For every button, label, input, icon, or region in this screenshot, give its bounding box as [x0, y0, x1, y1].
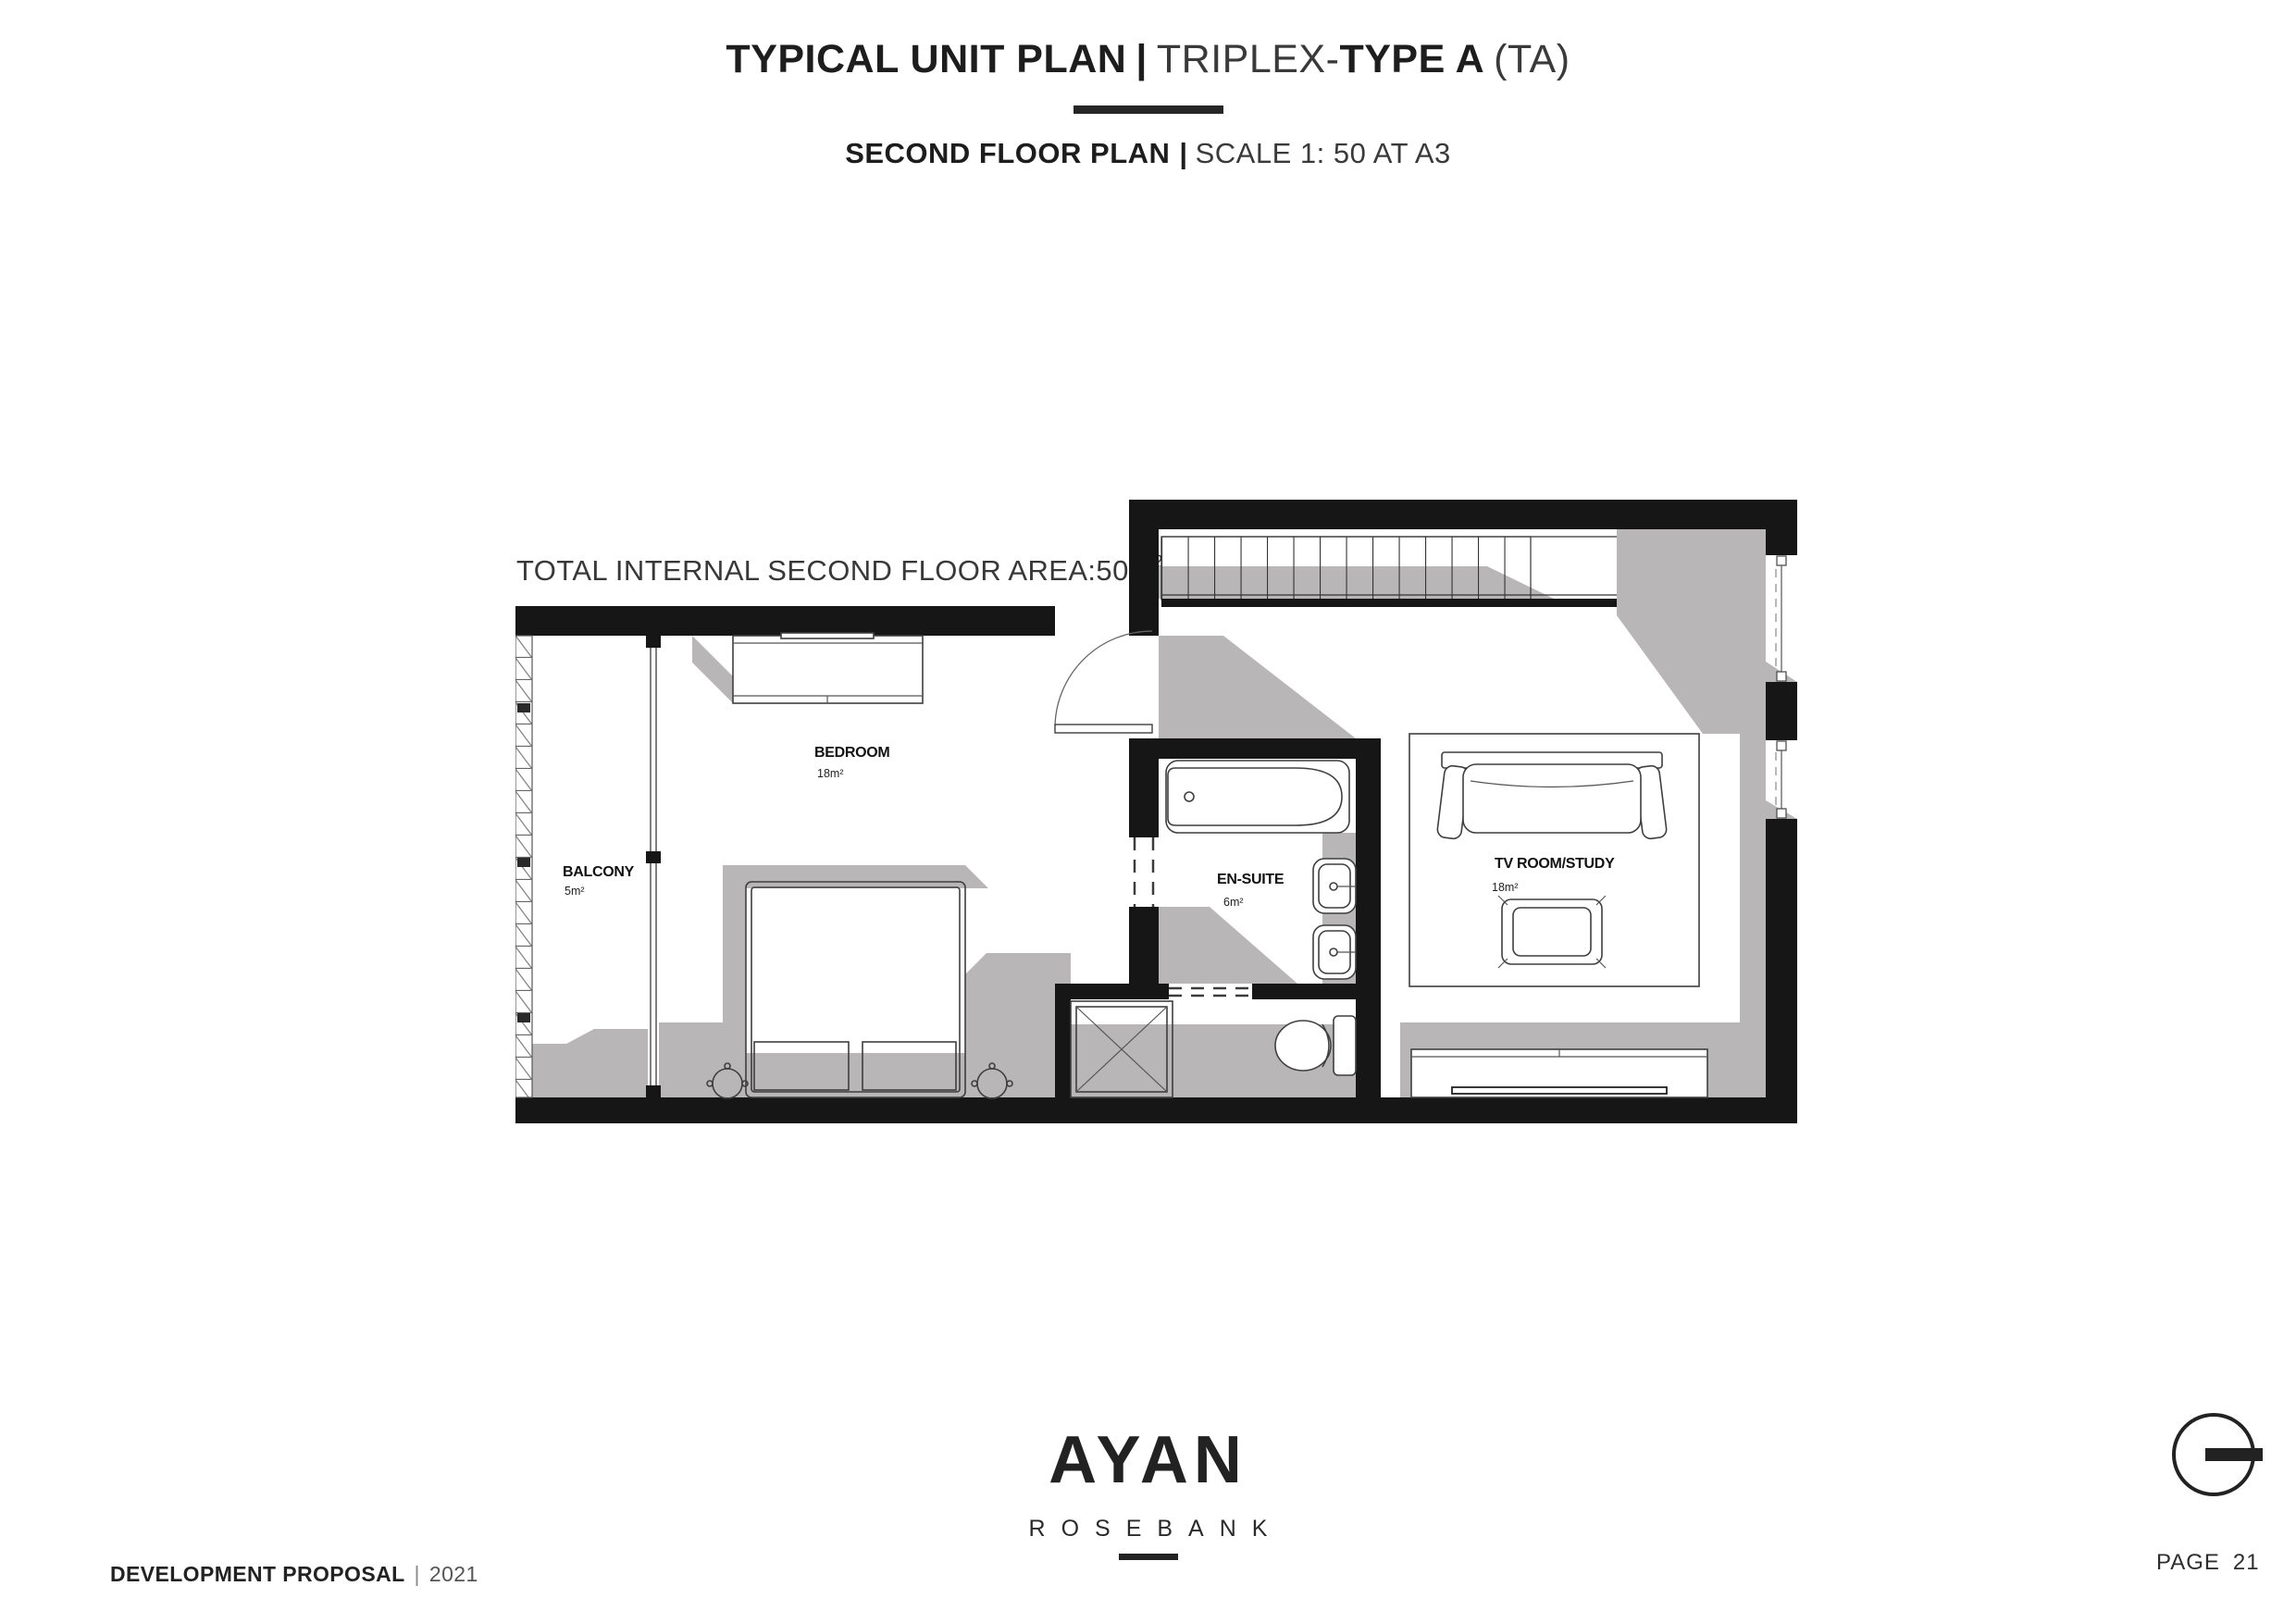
subtitle-separator: | [1170, 137, 1187, 169]
room-label: BEDROOM [814, 745, 889, 761]
document-footer: DEVELOPMENT PROPOSAL|2021 [110, 1562, 478, 1587]
orientation-marker-icon [2172, 1413, 2255, 1496]
balcony-screen [515, 636, 532, 1097]
page-number: PAGE21 [2156, 1550, 2260, 1576]
title-underline-rule [1074, 105, 1223, 114]
ottoman [1498, 896, 1606, 968]
doc-year: 2021 [429, 1562, 478, 1586]
page-subtitle: SECOND FLOOR PLAN|SCALE 1: 50 AT A3 [0, 137, 2296, 170]
title-type: TYPE A [1339, 37, 1484, 81]
room-area: 18m² [1492, 881, 1518, 894]
room-label: BALCONY [563, 864, 635, 880]
toilet-icon [1275, 1016, 1356, 1075]
sliding-door-icon [646, 636, 661, 1097]
washbasin-icon [1313, 859, 1356, 913]
title-separator: | [1126, 37, 1157, 81]
tv-console [1411, 1049, 1707, 1097]
wardrobe [733, 633, 923, 703]
title-suffix: (TA) [1484, 37, 1570, 81]
room-area: 6m² [1223, 896, 1244, 909]
door-swing-icon [1055, 631, 1152, 733]
company-logo: AYAN ROSEBANK [0, 1427, 2296, 1560]
floor-plan: BALCONY 5m² BEDROOM 18m² EN-SUITE 6m² TV… [515, 495, 1811, 1134]
title-main: TYPICAL UNIT PLAN [726, 37, 1126, 81]
room-area: 5m² [565, 885, 585, 898]
doc-title: DEVELOPMENT PROPOSAL [110, 1562, 405, 1586]
footer-separator: | [405, 1562, 429, 1586]
page-value: 21 [2220, 1550, 2260, 1575]
page-title: TYPICAL UNIT PLAN|TRIPLEX-TYPE A(TA) [0, 37, 2296, 82]
room-area: 18m² [817, 767, 843, 780]
logo-text: AYAN [0, 1427, 2296, 1493]
logo-underline [1119, 1554, 1178, 1560]
subtitle-main: SECOND FLOOR PLAN [845, 137, 1170, 169]
room-label: EN-SUITE [1217, 872, 1285, 887]
window-icon [1766, 555, 1797, 682]
washbasin-icon [1313, 925, 1356, 979]
page-label: PAGE [2156, 1550, 2220, 1575]
sofa [1436, 752, 1667, 839]
orientation-needle [2205, 1448, 2263, 1461]
window-icon [1766, 740, 1797, 819]
bathtub-icon [1166, 761, 1349, 833]
subtitle-scale: SCALE 1: 50 AT A3 [1188, 137, 1451, 169]
title-type-prefix: TRIPLEX- [1157, 37, 1340, 81]
logo-subtext: ROSEBANK [0, 1516, 2296, 1542]
room-label: TV ROOM/STUDY [1495, 856, 1615, 872]
